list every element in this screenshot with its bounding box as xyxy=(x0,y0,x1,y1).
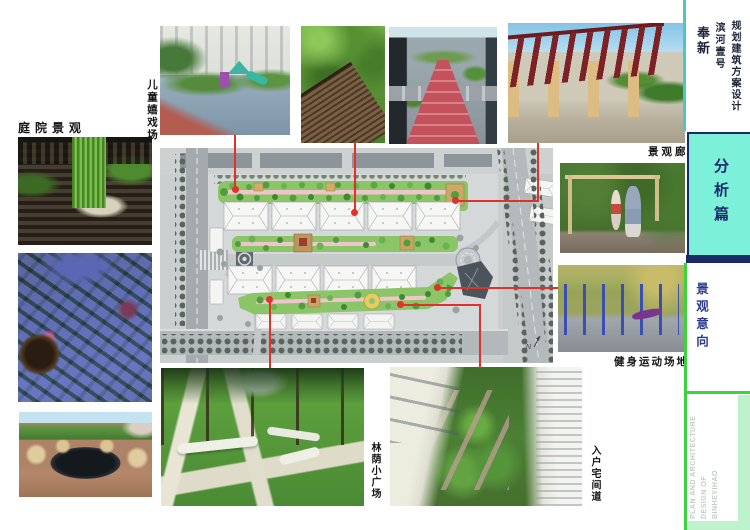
photo-entry-path xyxy=(390,367,582,506)
connector-dot xyxy=(266,296,273,303)
green-divider-rule xyxy=(684,263,687,530)
photo-fitness-equipment xyxy=(558,265,685,352)
connector-entrypath-v xyxy=(479,304,481,368)
photo-pergola-corridor xyxy=(508,23,685,143)
project-name: 滨河壹号 xyxy=(711,22,726,70)
connector-plaza xyxy=(269,300,271,368)
photo-shaded-plaza xyxy=(161,368,364,506)
label-shaded-plaza: 林荫小广场 xyxy=(367,442,382,500)
playground-slide-decor xyxy=(245,70,268,86)
footer-line: BINHEYIHAO xyxy=(710,393,721,519)
exercise-post-decor xyxy=(655,175,659,222)
photo-night-garden xyxy=(18,253,152,402)
footer-line: DESIGN OF xyxy=(699,393,710,519)
teal-divider-rule xyxy=(683,0,686,131)
site-master-plan: N xyxy=(160,148,553,363)
plaza-bench-decor xyxy=(266,426,319,442)
boardwalk-deck-decor xyxy=(301,62,385,143)
connector-dot xyxy=(397,301,404,308)
presentation-board: 庭院景观 儿童嬉戏场 景观廊 健身运动场地 林荫小广场 入户宅间道 xyxy=(0,0,750,530)
label-entry-path: 入户宅间道 xyxy=(587,445,602,503)
photo-fountain xyxy=(19,412,152,497)
project-location: 奉新 xyxy=(693,26,712,56)
photo-boardwalk xyxy=(301,26,385,143)
label-fitness-ground: 健身运动场地 xyxy=(614,354,689,369)
label-landscape-corridor: 景观廊 xyxy=(648,144,689,159)
connector-dot xyxy=(452,197,459,204)
footer-line: PLAN AND ARCHITECTURE xyxy=(688,393,699,519)
connector-playground xyxy=(234,135,236,190)
series-title: 规划建筑方案设计 xyxy=(727,20,742,112)
connector-dot xyxy=(232,186,239,193)
exercise-man-figure-decor xyxy=(625,186,641,236)
photo-hedge-exercise xyxy=(560,163,685,253)
label-children-playground: 儿童嬉戏场 xyxy=(144,79,159,142)
connector-boardwalk xyxy=(354,143,356,213)
pale-green-band-right xyxy=(738,395,750,530)
exercise-post-decor xyxy=(568,175,572,234)
connector-pergola-h xyxy=(456,200,539,202)
pale-green-band-bottom xyxy=(684,521,750,530)
connector-dot xyxy=(434,284,441,291)
connector-entrypath-h xyxy=(401,304,481,306)
photo-children-playground xyxy=(160,26,290,135)
photo-red-walkway xyxy=(389,27,497,144)
playground-panel-decor xyxy=(220,72,229,87)
connector-fitness xyxy=(439,287,558,289)
walkway-path-decor xyxy=(406,60,479,144)
section-badge-box: 分析篇 xyxy=(687,132,750,257)
connector-dot xyxy=(351,209,358,216)
courtyard-bamboo-decor xyxy=(72,137,107,208)
label-courtyard: 庭院景观 xyxy=(18,119,86,136)
connector-pergola-v xyxy=(537,143,539,202)
exercise-child-figure-decor xyxy=(611,190,621,230)
english-footer: PLAN AND ARCHITECTURE DESIGN OF BINHEYIH… xyxy=(688,393,721,519)
photo-courtyard xyxy=(18,137,152,245)
navy-divider-bar xyxy=(686,255,750,263)
exercise-bar-decor xyxy=(565,175,660,179)
plaza-bench-decor xyxy=(177,436,259,454)
section-subtitle: 景观意向 xyxy=(692,282,711,352)
plaza-bench-decor xyxy=(278,446,320,465)
section-badge: 分析篇 xyxy=(710,158,731,230)
